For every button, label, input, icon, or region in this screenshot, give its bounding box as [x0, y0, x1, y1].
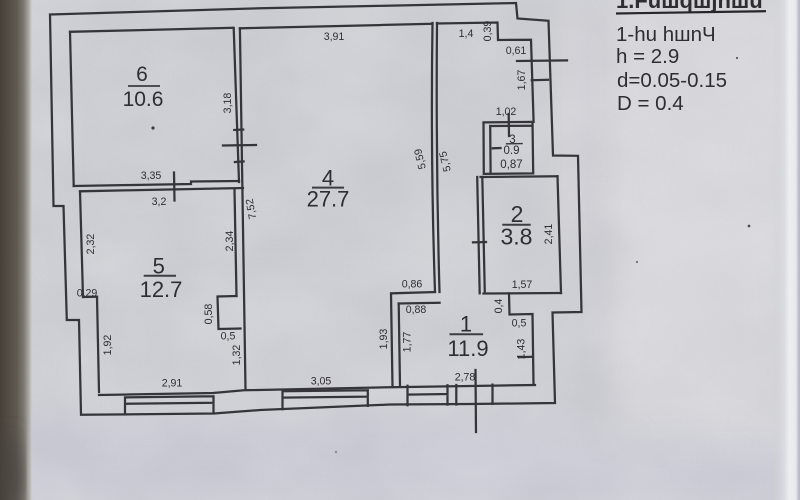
svg-text:3,2: 3,2	[152, 196, 167, 208]
svg-text:27.7: 27.7	[307, 187, 350, 212]
svg-text:1: 1	[460, 312, 472, 337]
svg-text:6: 6	[136, 63, 148, 86]
svg-text:1,92: 1,92	[102, 335, 114, 356]
svg-text:3,91: 3,91	[324, 31, 345, 43]
svg-text:h = 2.9: h = 2.9	[616, 45, 679, 68]
svg-text:1,67: 1,67	[516, 70, 528, 91]
svg-text:1,02: 1,02	[496, 106, 517, 118]
svg-text:1,4: 1,4	[459, 28, 474, 40]
svg-text:0,29: 0,29	[77, 288, 98, 300]
svg-text:10.6: 10.6	[123, 88, 164, 111]
svg-text:2,78: 2,78	[455, 372, 476, 384]
svg-text:0,4: 0,4	[493, 299, 505, 314]
svg-text:2,41: 2,41	[543, 224, 555, 245]
svg-text:1,43: 1,43	[516, 339, 528, 360]
svg-text:0,5: 0,5	[221, 331, 236, 343]
svg-text:1,57: 1,57	[512, 279, 533, 291]
svg-text:0.9: 0.9	[504, 145, 520, 157]
svg-text:0,5: 0,5	[512, 318, 527, 330]
svg-text:1-hu hшnЧ: 1-hu hшnЧ	[616, 23, 716, 46]
svg-text:0,61: 0,61	[506, 45, 527, 57]
svg-text:2,91: 2,91	[162, 378, 183, 390]
svg-text:1,32: 1,32	[231, 345, 243, 366]
svg-text:0,58: 0,58	[203, 304, 215, 325]
svg-text:0,88: 0,88	[406, 304, 427, 316]
svg-text:0,39: 0,39	[482, 21, 494, 42]
svg-text:2,32: 2,32	[85, 234, 97, 255]
svg-text:11.9: 11.9	[447, 336, 488, 361]
svg-text:1,93: 1,93	[378, 329, 390, 350]
svg-text:3,35: 3,35	[141, 170, 162, 182]
svg-text:3,05: 3,05	[311, 376, 332, 388]
svg-text:0,87: 0,87	[500, 159, 522, 171]
svg-text:0,86: 0,86	[402, 279, 423, 291]
svg-text:12.7: 12.7	[140, 277, 183, 302]
svg-text:3.8: 3.8	[501, 224, 533, 250]
svg-text:2,34: 2,34	[224, 231, 236, 252]
svg-text:d=0.05-0.15: d=0.05-0.15	[617, 69, 727, 92]
svg-text:D = 0.4: D = 0.4	[617, 92, 684, 115]
svg-text:1,77: 1,77	[402, 332, 414, 353]
svg-text:3,18: 3,18	[222, 93, 234, 114]
